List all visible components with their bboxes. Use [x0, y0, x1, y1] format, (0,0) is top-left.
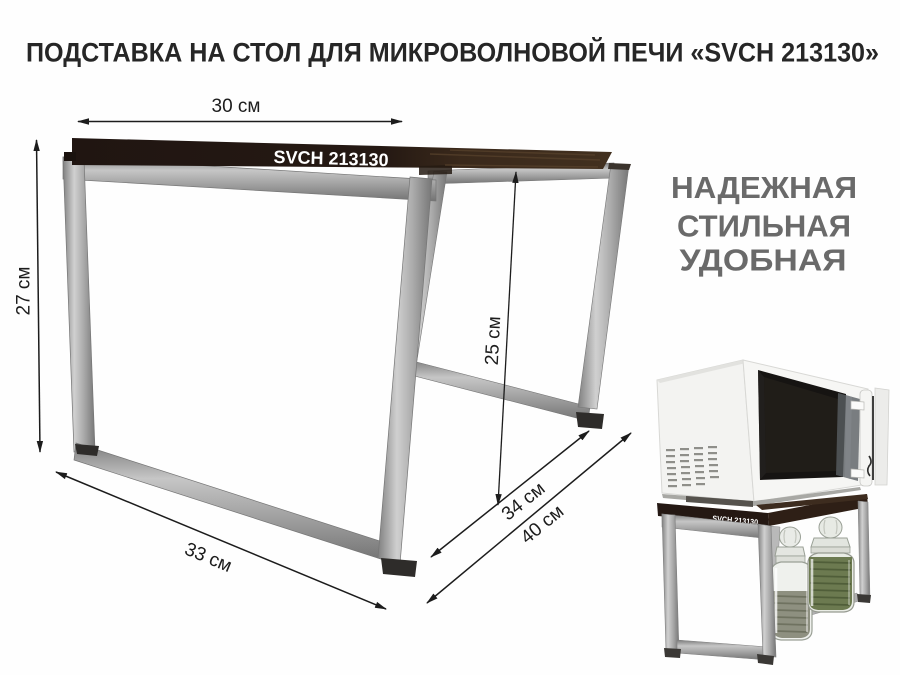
svg-text:СТИЛЬНАЯ: СТИЛЬНАЯ — [677, 209, 851, 244]
svg-text:SVCH 213130: SVCH 213130 — [273, 147, 389, 170]
svg-text:30 см: 30 см — [212, 96, 261, 117]
svg-text:27 см: 27 см — [14, 267, 35, 316]
svg-text:25 см: 25 см — [482, 316, 506, 366]
svg-text:33 см: 33 см — [181, 539, 234, 577]
svg-text:ПОДСТАВКА НА СТОЛ ДЛЯ МИКРОВОЛ: ПОДСТАВКА НА СТОЛ ДЛЯ МИКРОВОЛНОВОЙ ПЕЧИ… — [26, 36, 879, 67]
svg-text:НАДЕЖНАЯ: НАДЕЖНАЯ — [671, 170, 857, 205]
svg-text:УДОБНАЯ: УДОБНАЯ — [680, 243, 847, 278]
